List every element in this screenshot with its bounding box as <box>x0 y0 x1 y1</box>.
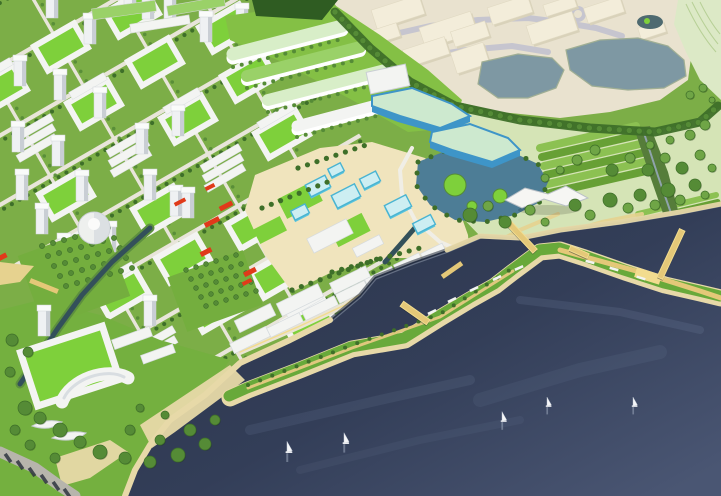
orchard-tree <box>229 286 234 291</box>
orchard-tree <box>204 283 209 288</box>
orchard-tree <box>239 262 244 267</box>
orchard-tree <box>78 244 83 249</box>
orchard-tree <box>199 274 204 279</box>
rendering-canvas <box>0 0 721 496</box>
orchard-tree <box>194 286 199 291</box>
orchard-tree <box>79 267 84 272</box>
orchard-tree <box>214 259 219 264</box>
dark-pond <box>637 15 663 29</box>
orchard-tree <box>90 264 95 269</box>
orchard-tree <box>63 283 68 288</box>
orchard-tree <box>229 265 234 270</box>
orchard-tree <box>84 254 89 259</box>
orchard-tree <box>45 253 50 258</box>
orchard-tree <box>234 295 239 300</box>
orchard-tree <box>68 270 73 275</box>
orchard-tree <box>39 243 44 248</box>
orchard-tree <box>73 257 78 262</box>
orchard-tree <box>189 277 194 282</box>
orchard-tree <box>234 274 239 279</box>
orchard-tree <box>57 273 62 278</box>
orchard-tree <box>219 268 224 273</box>
orchard-tree <box>254 289 259 294</box>
orchard-tree <box>224 256 229 261</box>
orchard-tree <box>72 234 77 239</box>
orchard-tree <box>199 295 204 300</box>
orchard-tree <box>129 265 134 270</box>
orchard-tree <box>194 265 199 270</box>
orchard-tree <box>50 240 55 245</box>
orchard-tree <box>224 298 229 303</box>
orchard-tree <box>118 268 123 273</box>
orchard-tree <box>234 253 239 258</box>
orchard-tree <box>106 248 111 253</box>
orchard-tree <box>204 304 209 309</box>
orchard-tree <box>62 260 67 265</box>
masterplan-aerial-rendering <box>0 0 721 496</box>
orchard-tree <box>51 263 56 268</box>
orchard-tree <box>56 250 61 255</box>
orchard-tree <box>209 292 214 297</box>
orchard-tree <box>224 277 229 282</box>
orchard-tree <box>214 280 219 285</box>
orchard-tree <box>61 237 66 242</box>
orchard-tree <box>214 301 219 306</box>
orchard-tree <box>184 268 189 273</box>
orchard-tree <box>95 251 100 256</box>
orchard-tree <box>74 280 79 285</box>
orchard-tree <box>111 235 116 240</box>
orchard-tree <box>219 289 224 294</box>
orchard-tree <box>204 262 209 267</box>
orchard-tree <box>67 247 72 252</box>
orchard-tree <box>209 271 214 276</box>
orchard-tree <box>244 292 249 297</box>
